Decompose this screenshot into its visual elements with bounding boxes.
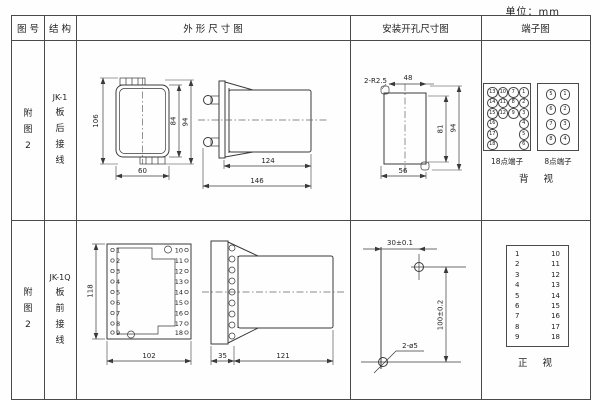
jk1q-outline-drawing: 1 2 3 4 5 6 7 8 9 10 11 12 13 14 15 16 1…: [76, 220, 350, 399]
label-2-R2.5: 2-R2.5: [364, 77, 387, 85]
pin-label: 5: [116, 288, 120, 296]
terminal-pin: 9: [508, 108, 519, 119]
pin-number: 10: [551, 251, 560, 258]
pin-label: 10: [175, 246, 183, 254]
dim-106: 106: [92, 114, 100, 128]
terminal-8pt-box: 5 1 6 2 7 3 8 4: [537, 83, 579, 151]
terminal-row: 615: [515, 303, 560, 310]
label-18pt: 18点端子: [491, 156, 523, 167]
dim-48: 48: [404, 74, 413, 82]
pin-label: 1: [116, 246, 120, 254]
header-fig-no: 图 号: [12, 16, 44, 40]
terminal-pin: 14: [487, 98, 498, 109]
pin-number: 3: [515, 272, 519, 279]
pin-label: 15: [175, 299, 183, 307]
terminal-front-box: 110 211 312 413 514 615 716 817 918: [506, 245, 569, 347]
front-view-label: 正 视: [518, 355, 558, 369]
terminal-pin: 4: [519, 119, 530, 130]
terminal-pin: 8: [508, 98, 519, 109]
dim-81: 81: [437, 125, 445, 134]
dim-35: 35: [218, 352, 227, 360]
dim-100: 100±0.2: [437, 300, 445, 330]
terminal-row: 817: [515, 324, 560, 331]
drawing-sheet: 单位：mm 图 号 结 构 外 形 尺 寸 图 安装开孔尺寸图 端子图 附 图 …: [0, 0, 600, 400]
jk1-front-view: 106 84 94 60: [92, 78, 194, 180]
fig-char: 附: [23, 110, 32, 119]
structure-char: 线: [55, 157, 64, 166]
header-install: 安装开孔尺寸图: [350, 16, 481, 40]
model-label: JK-1Q: [49, 274, 70, 282]
jk1q-install-drawing: 30±0.1 100±0.2 2-ø5: [350, 220, 481, 399]
terminal-row: 413: [515, 282, 560, 289]
fig-char: 附: [23, 289, 32, 298]
pin-number: 7: [515, 313, 519, 320]
pin-label: 9: [116, 329, 120, 337]
jk1-install-drawing: 2-R2.5 48 81 94 56: [350, 40, 481, 220]
terminal-pin: 4: [560, 134, 571, 145]
jk1q-front-view: 1 2 3 4 5 6 7 8 9 10 11 12 13 14 15 16 1…: [87, 244, 192, 365]
pin-label: 2: [116, 257, 120, 265]
pin-number: 16: [551, 313, 560, 320]
terminal-pin: 13: [487, 87, 498, 98]
terminal-pin: 3: [560, 119, 571, 130]
fig-char: 图: [23, 305, 32, 314]
terminal-pin: 11: [498, 98, 509, 109]
pin-label: 3: [116, 267, 120, 275]
terminal-pin: 1: [519, 87, 530, 98]
terminal-pin: 17: [487, 129, 498, 140]
jk1q-side-view: 35 121: [202, 241, 344, 365]
terminal-pin: 1: [560, 89, 571, 100]
pin-number: 9: [515, 334, 519, 341]
terminal-row: 312: [515, 272, 560, 279]
terminal-row: 514: [515, 293, 560, 300]
pin-number: 12: [551, 272, 560, 279]
jk1-side-view: 124 146: [198, 81, 328, 189]
pin-label: 18: [175, 329, 183, 337]
pin-number: 17: [551, 324, 560, 331]
structure-char: 接: [55, 321, 64, 330]
dim-94: 94: [450, 123, 458, 132]
pin-number: 6: [515, 303, 519, 310]
fig-char: 2: [25, 321, 31, 330]
header-structure: 结 构: [44, 16, 76, 40]
dim-30: 30±0.1: [387, 239, 413, 247]
pin-number: 13: [551, 282, 560, 289]
structure-char: 线: [55, 337, 64, 346]
terminal-pin: 2: [560, 104, 571, 115]
terminal-pin: 2: [519, 98, 530, 109]
pin-label: 11: [175, 257, 183, 265]
terminal-row: 110: [515, 251, 560, 258]
pin-number: 5: [515, 293, 519, 300]
dimension-table: 图 号 结 构 外 形 尺 寸 图 安装开孔尺寸图 端子图 附 图 2 JK-1…: [11, 15, 591, 400]
pin-number: 1: [515, 251, 519, 258]
label-8pt: 8点端子: [544, 156, 571, 167]
model-label: JK-1: [53, 94, 68, 102]
pin-number: 18: [551, 334, 560, 341]
terminal-pin: 8: [546, 134, 557, 145]
row1-structure: JK-1 板 后 接 线: [44, 40, 76, 220]
dim-146: 146: [250, 177, 264, 185]
pin-label: 12: [175, 267, 183, 275]
terminal-pin: 6: [546, 104, 557, 115]
dim-94: 94: [182, 117, 190, 126]
pin-number: 15: [551, 303, 560, 310]
terminal-pin: 6: [519, 140, 530, 151]
terminal-row: 716: [515, 313, 560, 320]
pin-label: 16: [175, 309, 183, 317]
label-2-d5: 2-ø5: [402, 342, 418, 350]
terminal-pin: 5: [546, 89, 557, 100]
terminal-pin: 3: [519, 108, 530, 119]
dim-102: 102: [142, 352, 155, 360]
fig-char: 2: [25, 142, 31, 151]
row2-fig-no: 附 图 2: [12, 220, 44, 399]
pin-label: 17: [175, 320, 183, 328]
header-outline: 外 形 尺 寸 图: [76, 16, 350, 40]
terminal-pin: 7: [508, 87, 519, 98]
pin-label: 6: [116, 299, 120, 307]
structure-char: 板: [55, 289, 64, 298]
row1-fig-no: 附 图 2: [12, 40, 44, 220]
jk1q-mounting-holes: 30±0.1 100±0.2 2-ø5: [361, 239, 466, 373]
dim-60: 60: [138, 167, 147, 175]
rear-view-label: 背 视: [519, 171, 559, 185]
dim-56: 56: [399, 167, 408, 175]
pin-number: 2: [515, 261, 519, 268]
jk1q-terminal-diagram: 110 211 312 413 514 615 716 817 918 正 视: [481, 220, 590, 399]
terminal-pin: 15: [487, 108, 498, 119]
pin-label: 13: [175, 278, 183, 286]
pin-label: 8: [116, 320, 120, 328]
structure-char: 前: [55, 305, 64, 314]
terminal-pin: 16: [487, 119, 498, 130]
pin-number: 8: [515, 324, 519, 331]
pin-label: 14: [175, 288, 183, 296]
dim-84: 84: [170, 116, 178, 125]
row2-structure: JK-1Q 板 前 接 线: [44, 220, 76, 399]
terminal-row: 918: [515, 334, 560, 341]
terminal-row: 211: [515, 261, 560, 268]
dim-118: 118: [87, 284, 95, 297]
jk1-cutout: 2-R2.5 48 81 94 56: [364, 74, 462, 179]
jk1-terminal-diagrams: 13 10 7 1 14 11 8 2 15 12 9 3 16 4 17 5: [481, 40, 590, 220]
structure-char: 后: [55, 125, 64, 134]
fig-char: 图: [23, 126, 32, 135]
terminal-pin: 5: [519, 129, 530, 140]
pin-label: 7: [116, 309, 120, 317]
dim-124: 124: [261, 157, 275, 165]
terminal-18pt-box: 13 10 7 1 14 11 8 2 15 12 9 3 16 4 17 5: [483, 83, 531, 151]
structure-char: 板: [55, 109, 64, 118]
dim-121: 121: [276, 352, 289, 360]
terminal-pin: 10: [498, 87, 509, 98]
pin-number: 4: [515, 282, 519, 289]
header-terminal: 端子图: [481, 16, 590, 40]
jk1-outline-drawing: 106 84 94 60: [76, 40, 350, 220]
pin-label: 4: [116, 278, 120, 286]
structure-char: 接: [55, 141, 64, 150]
terminal-pin: 18: [487, 140, 498, 151]
terminal-pin: 7: [546, 119, 557, 130]
pin-number: 11: [551, 261, 560, 268]
terminal-pin: 12: [498, 108, 509, 119]
pin-number: 14: [551, 293, 560, 300]
